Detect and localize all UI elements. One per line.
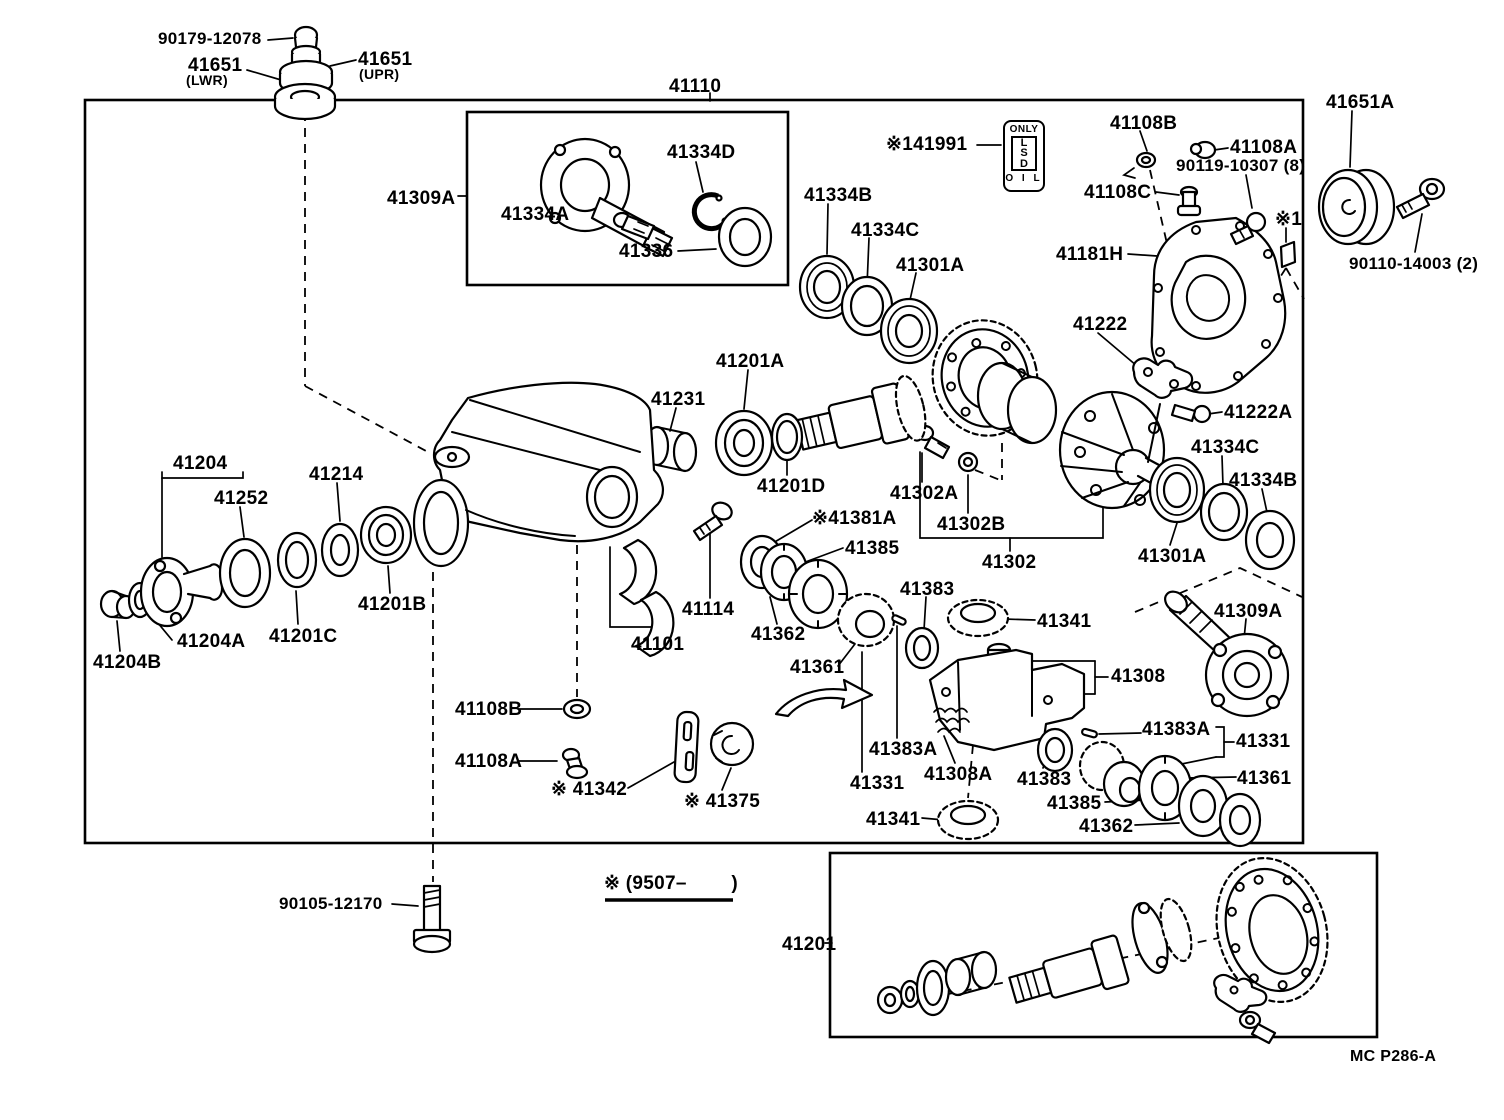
part-bearing-caps-41101 <box>620 540 673 656</box>
part-top-mount-cushion-41651 <box>275 27 335 119</box>
part-seal-41334B-right <box>1246 511 1294 569</box>
lsd-oil-tag: ONLY L S D O I L <box>1003 120 1045 192</box>
part-ring-pinion-set-41201 <box>878 846 1343 1043</box>
part-bolt-41222A <box>1172 405 1210 422</box>
part-washer-41383-left <box>906 628 938 668</box>
part-slinger-41214 <box>322 524 358 576</box>
part-pinion-gear-41341-bottom <box>938 801 998 839</box>
part-drive-pinion-shaft <box>792 373 931 466</box>
part-washer-41201D <box>772 414 802 460</box>
lsd-tag-only-text: ONLY <box>1010 124 1039 135</box>
part-carrier-housing-41110 <box>414 383 663 566</box>
part-flange-41204 <box>141 558 222 626</box>
part-washer-41108B-bottom <box>564 700 590 718</box>
part-inset-companion-flange-41309A <box>541 139 672 256</box>
part-seal-41201C <box>278 533 316 587</box>
part-breather-41108C <box>1178 187 1200 215</box>
part-bolt-90105-12170 <box>414 886 450 952</box>
diagram-artwork: .pt{fill:#fff;stroke:#000;stroke-width:2… <box>0 0 1504 1120</box>
part-bolt-41108A-top <box>1191 142 1215 158</box>
part-gear-set-41331 <box>1080 742 1144 806</box>
part-ring-41334C-right <box>1201 484 1247 540</box>
lsd-tag-oil-text: O I L <box>1005 173 1042 184</box>
part-bolt-41108A-bottom <box>563 749 587 778</box>
part-washer-41383-right <box>1038 729 1072 771</box>
part-pin-41383A-right <box>1081 728 1097 738</box>
part-output-flange-41309A <box>1161 587 1288 716</box>
part-bearing-41301A-right <box>1150 458 1204 522</box>
part-mount-cushion-41651A <box>1319 170 1394 244</box>
part-lock-plate-41342 <box>674 712 699 783</box>
lsd-letter-d: D <box>1020 159 1028 169</box>
part-plug-41302B <box>959 453 977 471</box>
part-oil-seal-41336 <box>719 208 771 266</box>
part-bearing-41201B <box>361 507 411 563</box>
part-pinion-gear-41341-top <box>948 600 1008 636</box>
part-bolt-90110-14003 <box>1397 179 1444 218</box>
part-bearing-41301A-top <box>881 299 937 363</box>
part-washer-41362-right <box>1220 794 1260 846</box>
part-side-gear-41361-left <box>838 594 894 646</box>
part-nut-41375 <box>711 723 753 765</box>
part-differential-case-41302 <box>921 309 1180 508</box>
lsd-tag-letters: L S D <box>1011 136 1037 171</box>
direction-arrow <box>776 680 872 716</box>
part-bolt-41114 <box>694 500 734 540</box>
part-shim-asterisk1 <box>1281 242 1295 267</box>
part-bearing-41201A <box>716 411 772 475</box>
parts-diagram-page: .pt{fill:#fff;stroke:#000;stroke-width:2… <box>0 0 1504 1120</box>
part-deflector-41252 <box>220 539 270 607</box>
